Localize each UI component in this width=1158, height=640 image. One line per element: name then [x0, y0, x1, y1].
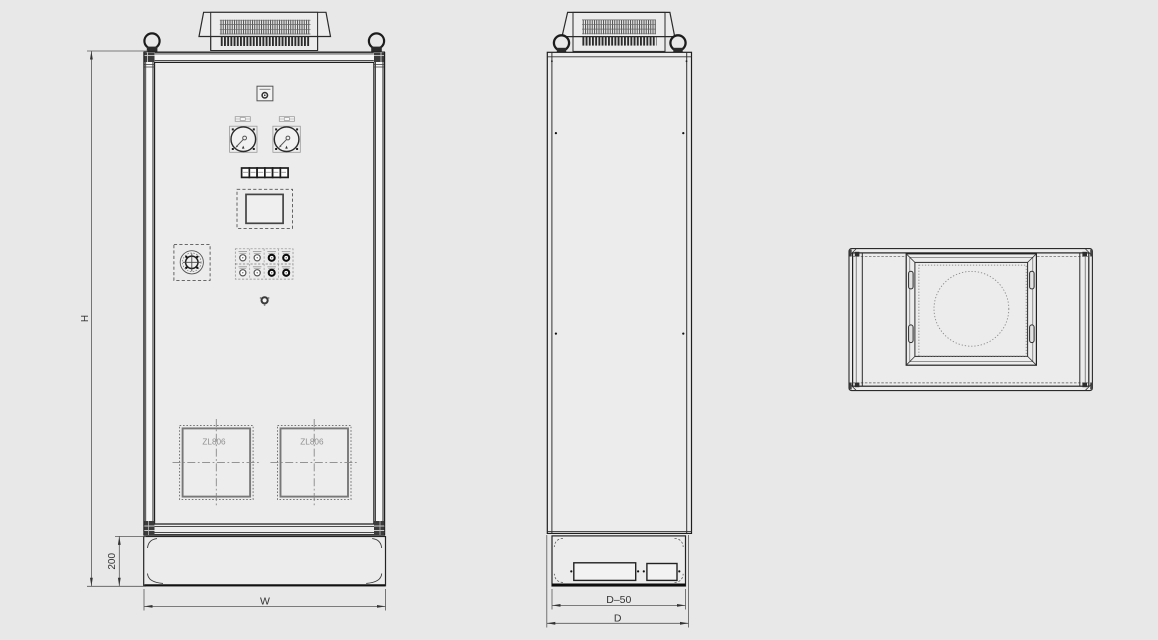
svg-text:D–50: D–50	[606, 594, 631, 606]
svg-text:W: W	[260, 595, 270, 607]
svg-text:H: H	[80, 315, 91, 322]
svg-text:D: D	[614, 612, 622, 624]
svg-text:ZL806: ZL806	[300, 437, 324, 446]
svg-text:200: 200	[107, 553, 118, 570]
svg-text:ZL806: ZL806	[202, 437, 226, 446]
